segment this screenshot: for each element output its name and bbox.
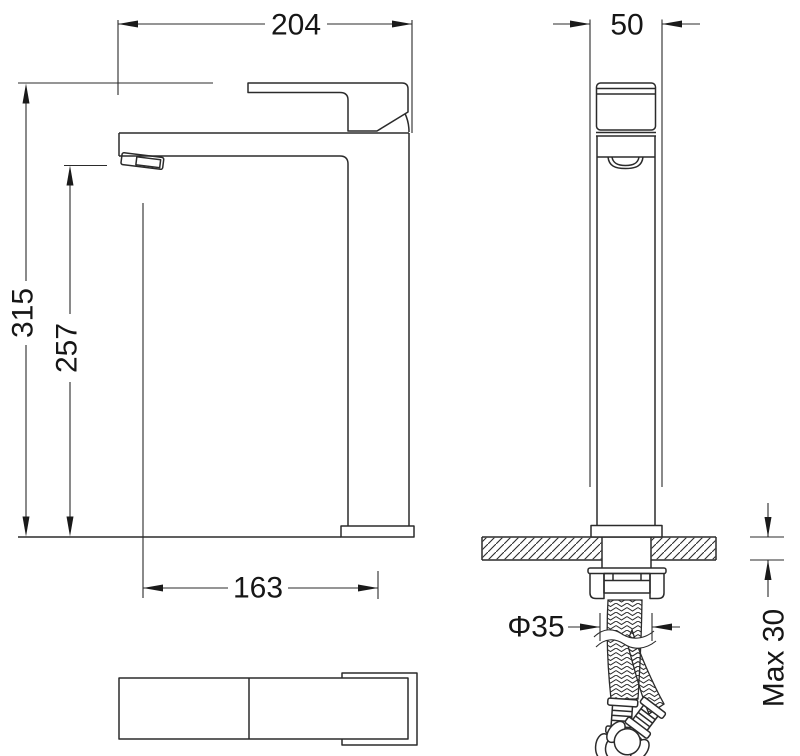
dim-204-label: 204 — [271, 9, 321, 42]
dimension-max-thickness: Max 30 — [750, 503, 791, 707]
counter-hatch-left — [483, 538, 602, 559]
hose-front-braid — [607, 600, 642, 699]
dim-315-label: 315 — [7, 288, 40, 338]
drawing-canvas: 204 50 315 257 — [0, 0, 800, 756]
arrowhead-up — [23, 84, 30, 104]
dim-phi35-label: Φ35 — [507, 611, 564, 644]
supply-hoses — [594, 600, 673, 756]
side-view — [18, 83, 414, 537]
dim-max30-label: Max 30 — [758, 609, 791, 707]
nut-left-lug — [590, 574, 604, 599]
top-view — [119, 673, 417, 745]
arrowhead-left — [662, 21, 682, 28]
arrowhead-right — [392, 21, 412, 28]
arrowhead-down — [765, 517, 772, 537]
aerator-outer-arc — [608, 157, 643, 169]
arrowhead-down — [23, 517, 30, 537]
dimension-spout-length: 204 — [118, 9, 412, 134]
arrowhead-up — [67, 166, 74, 186]
arrowhead-right — [580, 624, 600, 631]
arrowhead-right — [570, 21, 590, 28]
dimension-spout-reach: 163 — [143, 203, 378, 605]
counter-hatch-right — [652, 538, 716, 559]
dim-257-label: 257 — [51, 323, 84, 373]
nut-body — [604, 574, 650, 594]
base-cap — [591, 526, 662, 538]
nut-right-lug — [650, 574, 664, 599]
arrowhead-left — [143, 585, 163, 592]
arrowhead-down — [67, 517, 74, 537]
base-flange — [341, 526, 414, 537]
spout-outlet-aerator — [121, 153, 164, 170]
arrowhead-up — [765, 560, 772, 580]
handle-neck-fillet — [405, 114, 409, 133]
arrowhead-left — [118, 21, 138, 28]
aerator-inner-arc — [612, 157, 639, 166]
dimensions: 204 50 315 257 — [7, 9, 791, 708]
spout-bottom-edge — [119, 156, 348, 164]
handle-lever-outline — [248, 83, 408, 131]
body-plan — [119, 678, 408, 739]
handle-cap — [597, 83, 656, 130]
technical-drawing-sheet: 204 50 315 257 — [0, 0, 800, 756]
arrowhead-right — [358, 585, 378, 592]
dimension-body-width: 50 — [553, 9, 700, 488]
dim-50-label: 50 — [610, 9, 643, 42]
mounting-washer — [588, 568, 666, 574]
front-view — [482, 83, 716, 756]
dim-163-label: 163 — [233, 572, 283, 605]
dimension-overall-height: 315 — [7, 84, 40, 537]
arrowhead-left — [652, 624, 672, 631]
dimension-outlet-height: 257 — [51, 166, 108, 537]
